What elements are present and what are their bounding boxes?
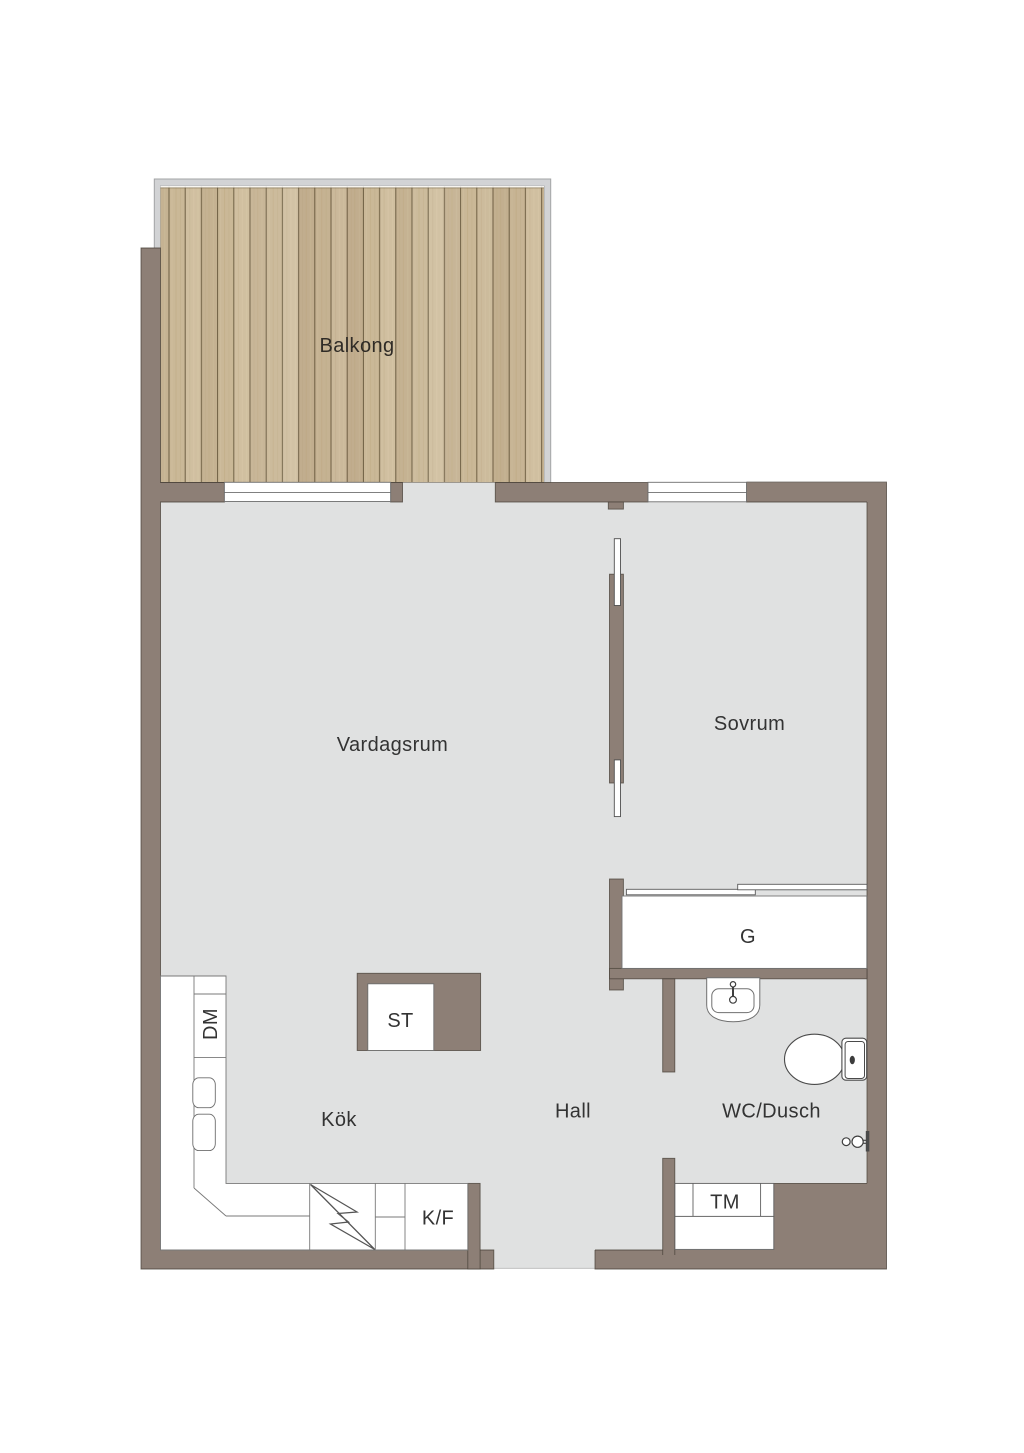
svg-text:ST: ST [387, 1010, 413, 1032]
svg-text:Vardagsrum: Vardagsrum [337, 734, 448, 756]
svg-text:Hall: Hall [555, 1101, 591, 1123]
svg-text:K/F: K/F [422, 1208, 454, 1230]
svg-text:Kök: Kök [321, 1109, 357, 1131]
svg-text:G: G [740, 926, 756, 948]
svg-text:TM: TM [710, 1192, 740, 1214]
svg-text:WC/Dusch: WC/Dusch [722, 1101, 821, 1123]
svg-text:DM: DM [200, 1008, 222, 1040]
svg-text:Sovrum: Sovrum [714, 713, 785, 735]
svg-text:Balkong: Balkong [319, 335, 394, 357]
